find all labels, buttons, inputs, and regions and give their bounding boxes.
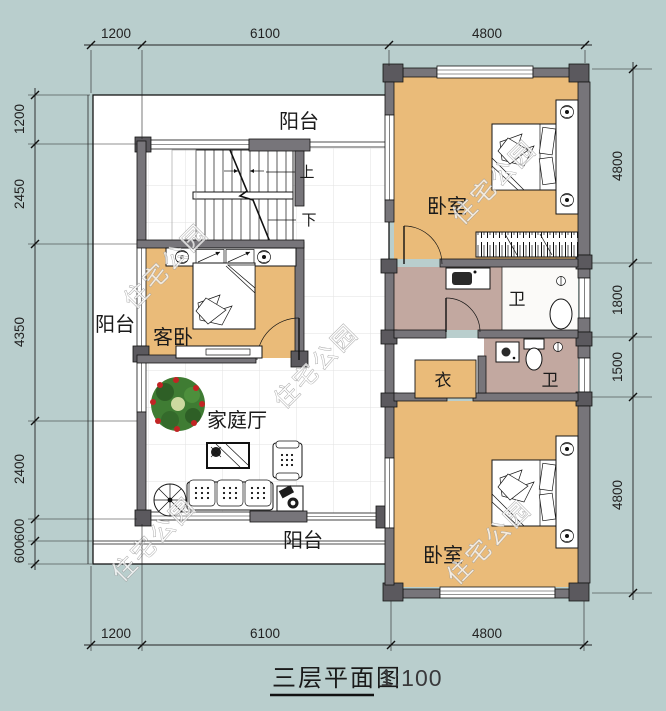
dim-left-5: 600: [12, 519, 27, 542]
bath-top-label: 卫: [509, 290, 526, 309]
corner-table: [277, 485, 303, 511]
balcony-left-label: 阳台: [95, 313, 135, 336]
toilet-icon: [524, 339, 544, 370]
bath-bottom-label: 卫: [542, 371, 559, 390]
dim-left-4: 2400: [12, 454, 27, 484]
dim-top-3: 4800: [472, 26, 502, 41]
floor-plan-canvas: 阳台 阳台 阳台 卧室 卧室 客卧 家庭厅 卫 卫 衣 上 下 住宅公园 住宅公…: [0, 0, 666, 711]
guest-bedroom-label: 客卧: [153, 326, 193, 349]
balcony-bottom-label: 阳台: [283, 529, 323, 552]
dim-left-1: 1200: [12, 104, 27, 134]
dim-left-2: 2450: [12, 179, 27, 209]
dim-right-1: 4800: [610, 151, 625, 181]
ceiling-lamp-icon: [561, 443, 574, 456]
ceiling-lamp-icon: [561, 530, 574, 543]
armchair: [273, 441, 302, 480]
dim-bottom-3: 4800: [472, 626, 502, 641]
dim-left-6: 600: [12, 541, 27, 564]
dim-right-2: 1800: [610, 285, 625, 315]
balcony-top-label: 阳台: [279, 110, 319, 133]
family-hall-label: 家庭厅: [207, 409, 267, 432]
dim-right-3: 1500: [610, 352, 625, 382]
stair-down-label: 下: [301, 212, 316, 229]
ceiling-lamp-icon: [561, 106, 574, 119]
dim-bottom-1: 1200: [101, 626, 131, 641]
ceiling-lamp-icon: [258, 251, 271, 264]
sofa: [187, 480, 273, 510]
stair-up-label: 上: [299, 164, 314, 181]
floor-plan-page: 阳台 阳台 阳台 卧室 卧室 客卧 家庭厅 卫 卫 衣 上 下 住宅公园 住宅公…: [0, 0, 666, 711]
dim-top-2: 6100: [250, 26, 280, 41]
dim-left-3: 4350: [12, 317, 27, 347]
wardrobe-top: [476, 232, 578, 257]
dim-right-4: 4800: [610, 480, 625, 510]
dim-top-1: 1200: [101, 26, 131, 41]
dim-bottom-2: 6100: [250, 626, 280, 641]
ceiling-lamp-icon: [561, 194, 574, 207]
coffee-table: [207, 443, 249, 468]
drawing-title: 三层平面图 1:100: [270, 665, 443, 695]
plant-wreath-icon: [150, 377, 205, 432]
title-scale: 1:100: [380, 665, 443, 691]
closet-label: 衣: [435, 371, 452, 390]
